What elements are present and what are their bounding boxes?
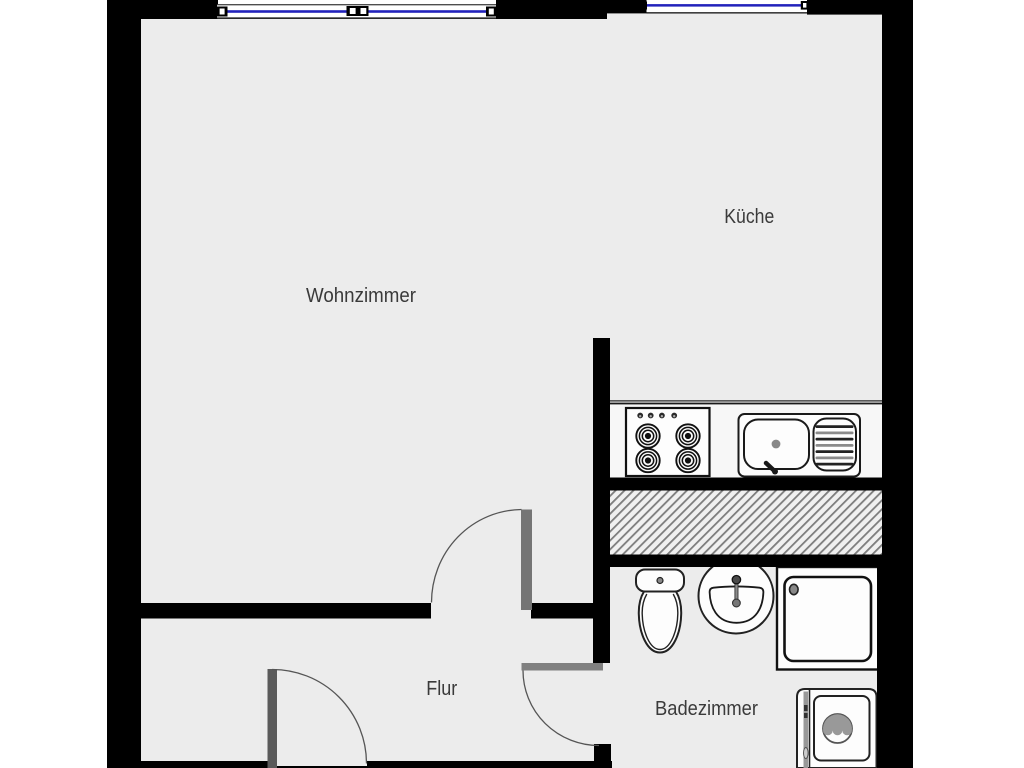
svg-text:Flur: Flur [426, 678, 457, 700]
svg-text:Badezimmer: Badezimmer [655, 698, 758, 720]
svg-text:Wohnzimmer: Wohnzimmer [306, 285, 416, 307]
svg-text:Küche: Küche [724, 206, 774, 228]
